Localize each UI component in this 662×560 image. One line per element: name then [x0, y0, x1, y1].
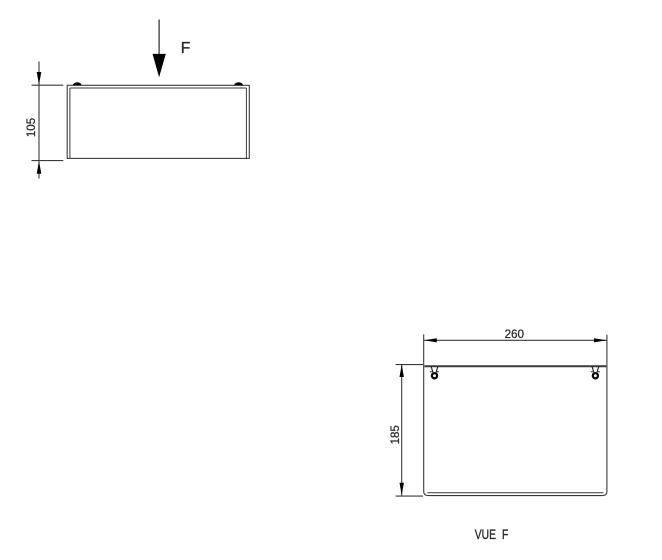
svg-text:260: 260: [504, 328, 524, 341]
svg-text:F: F: [181, 40, 191, 57]
svg-text:VUEF: VUEF: [475, 526, 509, 542]
svg-text:105: 105: [26, 118, 38, 137]
svg-text:185: 185: [390, 425, 402, 444]
